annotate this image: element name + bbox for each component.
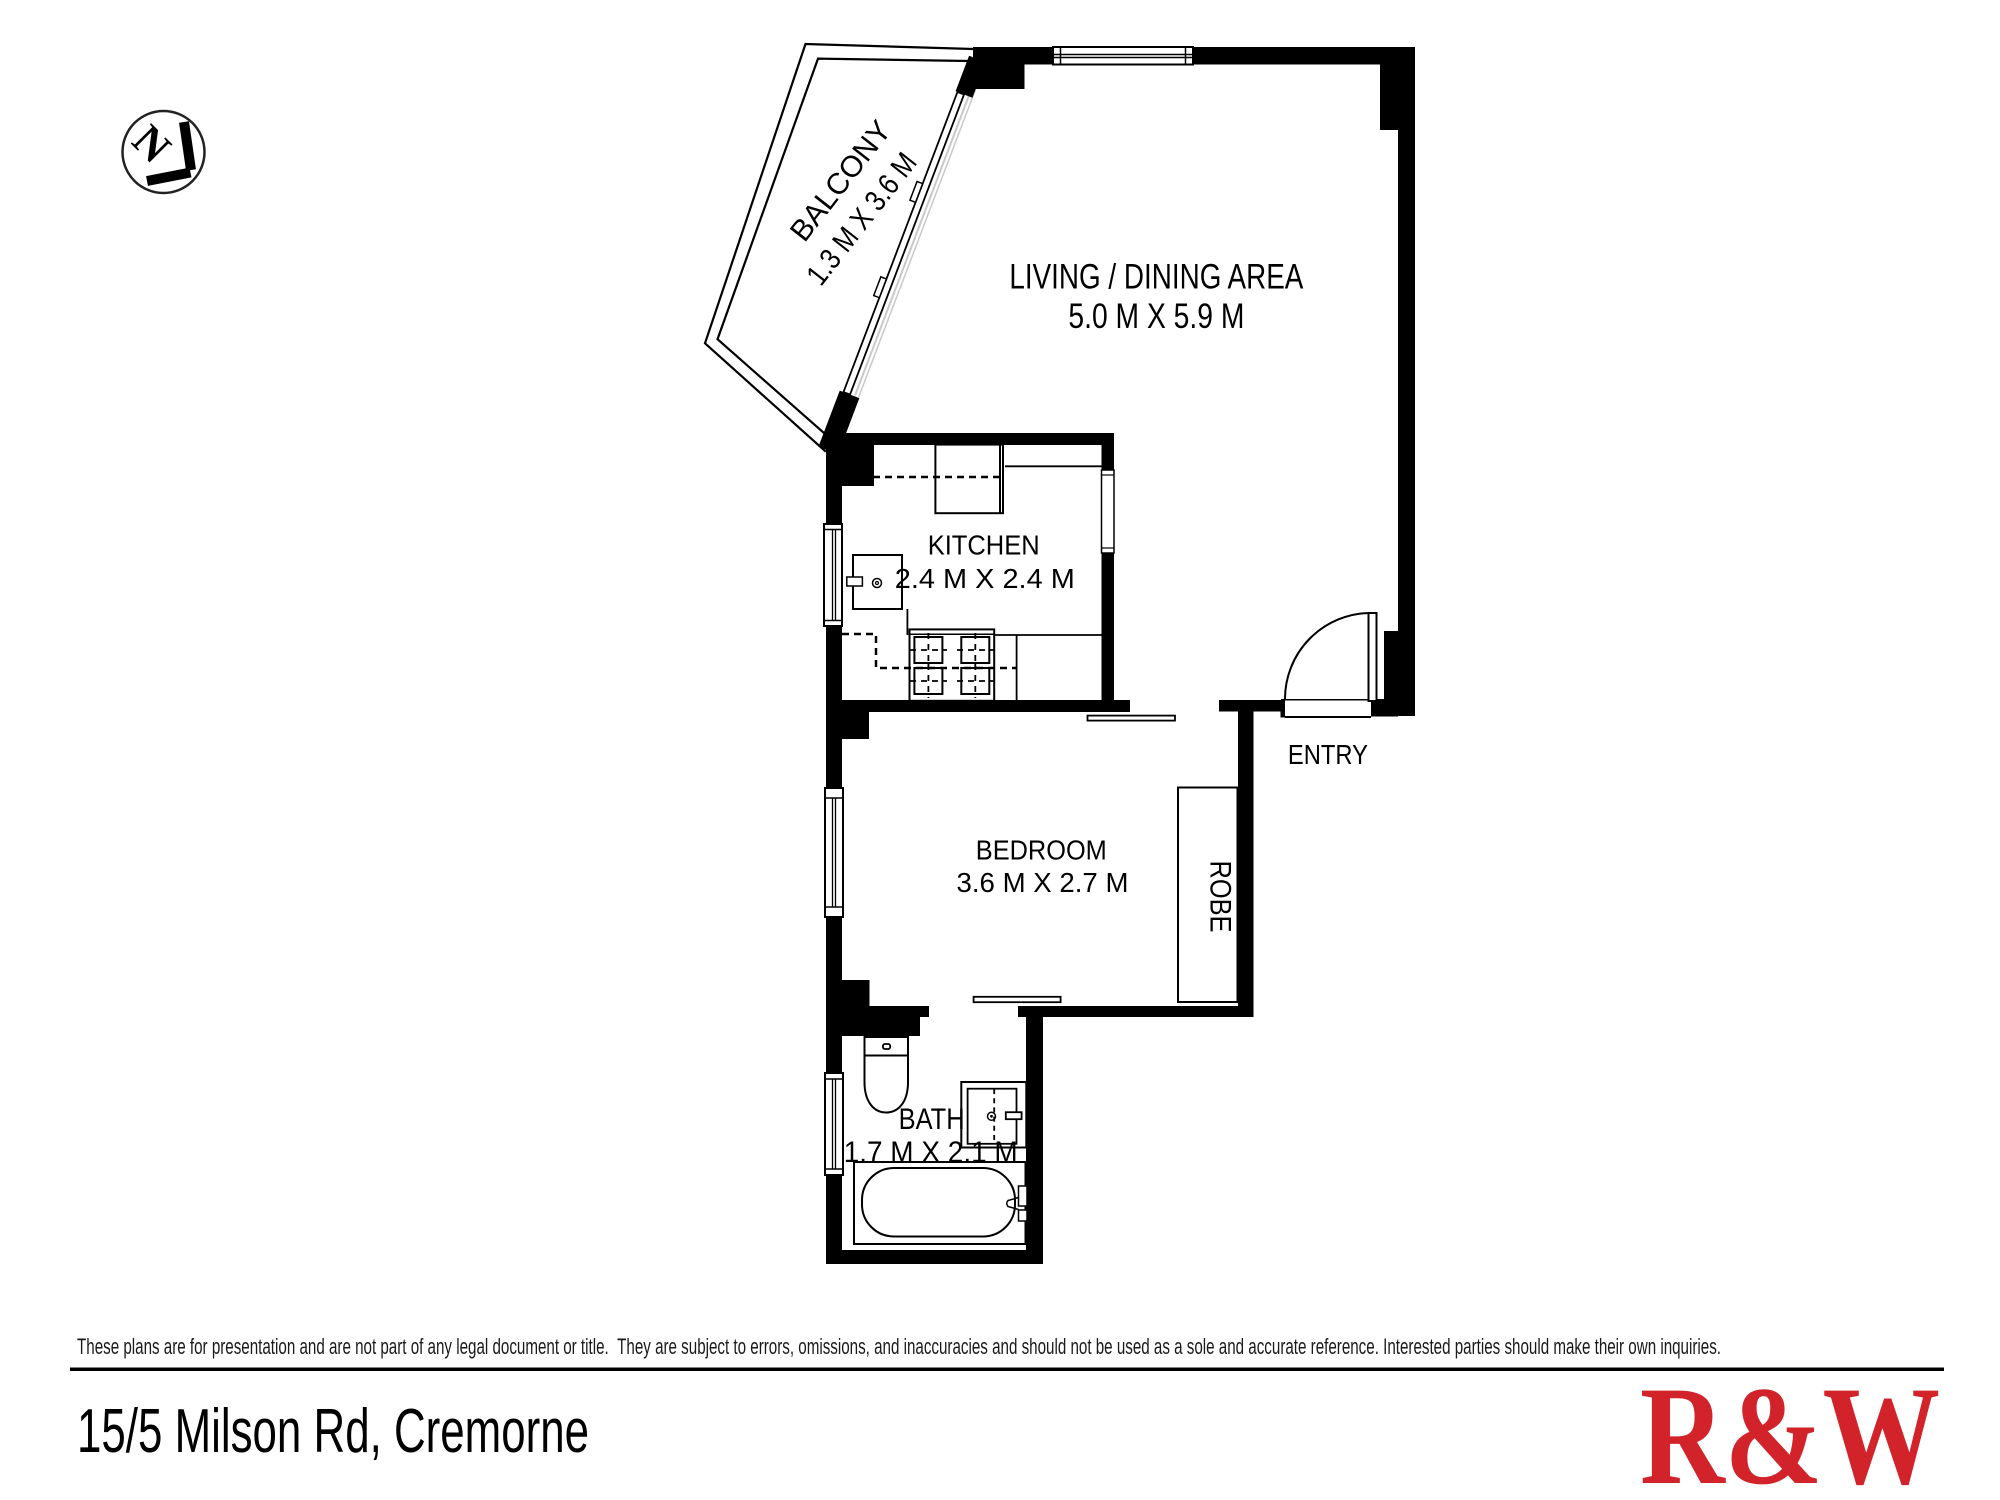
svg-text:LIVING / DINING AREA: LIVING / DINING AREA: [1009, 257, 1304, 296]
svg-text:KITCHEN: KITCHEN: [928, 530, 1040, 561]
svg-text:3.6 M X 2.7 M: 3.6 M X 2.7 M: [957, 867, 1129, 898]
svg-text:1.7 M X 2.1 M: 1.7 M X 2.1 M: [844, 1136, 1018, 1169]
svg-text:R&W: R&W: [1640, 1358, 1940, 1500]
svg-text:ENTRY: ENTRY: [1288, 739, 1368, 770]
svg-text:BEDROOM: BEDROOM: [976, 834, 1107, 865]
svg-text:ROBE: ROBE: [1204, 861, 1237, 933]
svg-text:These plans are for presentati: These plans are for presentation and are…: [77, 1334, 1721, 1359]
svg-text:BATH: BATH: [899, 1103, 965, 1136]
svg-text:5.0 M X 5.9 M: 5.0 M X 5.9 M: [1068, 297, 1244, 336]
svg-text:15/5 Milson Rd, Cremorne: 15/5 Milson Rd, Cremorne: [77, 1397, 589, 1466]
svg-text:2.4 M X 2.4 M: 2.4 M X 2.4 M: [895, 563, 1075, 594]
